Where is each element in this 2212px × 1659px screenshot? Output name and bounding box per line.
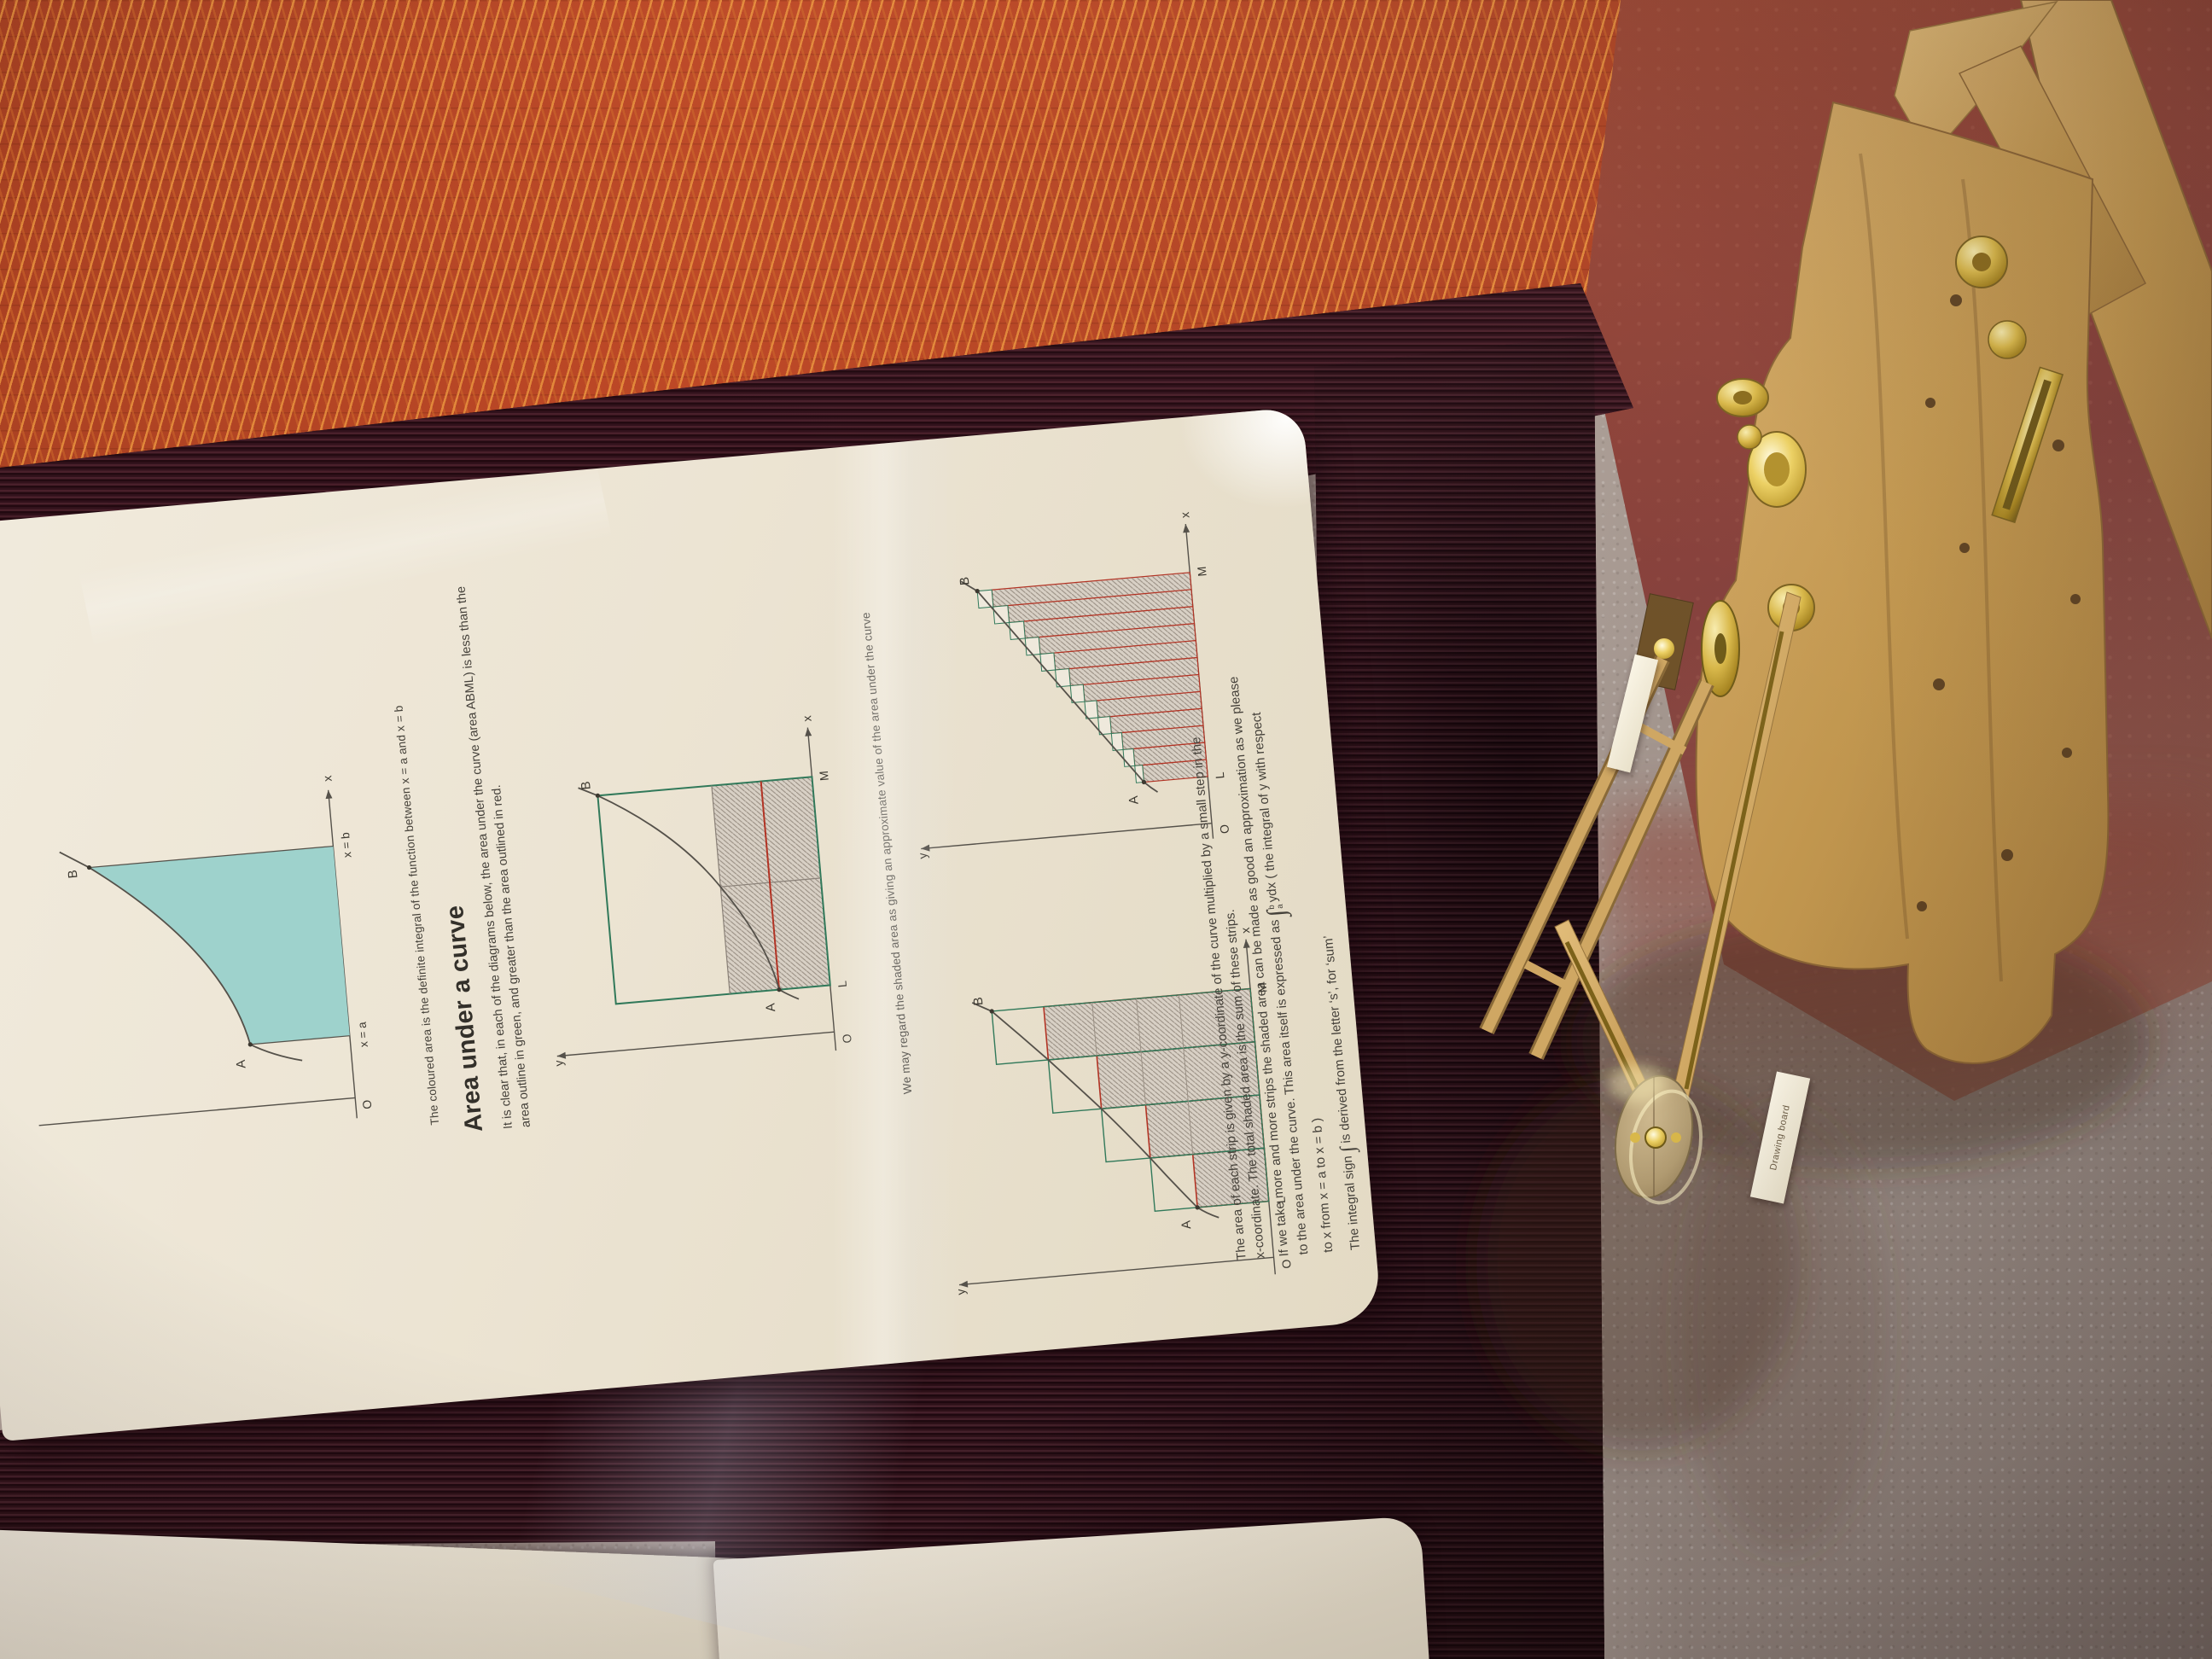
d2-label-o: O — [840, 1033, 854, 1044]
d2-label-a: A — [763, 1003, 778, 1012]
d4-strips — [977, 573, 1208, 795]
brass-knob-top — [1717, 379, 1768, 416]
d3-label-a: A — [1179, 1220, 1194, 1229]
d1-label-xa: x = a — [355, 1021, 370, 1047]
area-under-curve-poster: A B O x = a x = b x The coloured area is… — [0, 407, 1382, 1441]
brass-knob-top-right — [1956, 236, 2007, 288]
blank-poster-bottom-left — [0, 1529, 780, 1659]
frame-screw — [1654, 638, 1674, 659]
d1-label-x: x — [320, 775, 335, 782]
d1-label-o: O — [359, 1099, 374, 1109]
brass-disc-small — [1988, 321, 2026, 358]
floor-tag-text: Drawing board — [1768, 1104, 1792, 1172]
brass-glint — [1608, 1065, 1666, 1103]
poster-content: A B O x = a x = b x The coloured area is… — [0, 462, 1355, 1429]
d3-label-b: B — [971, 997, 987, 1006]
instrument-board — [1697, 102, 2109, 1063]
d1-label-b: B — [66, 870, 81, 879]
d3-label-y: y — [953, 1289, 968, 1295]
d2-label-x: x — [800, 715, 814, 722]
museum-scene-photo: A B O x = a x = b x The coloured area is… — [0, 0, 2212, 1659]
d2-label-y: y — [551, 1060, 566, 1067]
poster-heading: Area under a curve — [441, 905, 489, 1133]
brass-wheel-edge — [1702, 601, 1739, 696]
d2-label-b: B — [579, 781, 594, 790]
d4-label-b: B — [958, 576, 973, 585]
drawing-instrument — [1280, 0, 2212, 1659]
d1-label-xb: x = b — [339, 832, 354, 859]
d4-label-a: A — [1126, 795, 1142, 805]
diagram-rectangle-approximation: y x O L M A B — [518, 696, 890, 1091]
caption-definite-integral: The coloured area is the definite integr… — [392, 705, 441, 1126]
diagram-definite-integral: A B O x = a x = b x — [9, 755, 404, 1161]
d2-label-l: L — [835, 980, 849, 987]
d4-label-y: y — [916, 853, 930, 859]
d2-label-m: M — [817, 771, 831, 782]
d1-label-a: A — [234, 1059, 249, 1068]
